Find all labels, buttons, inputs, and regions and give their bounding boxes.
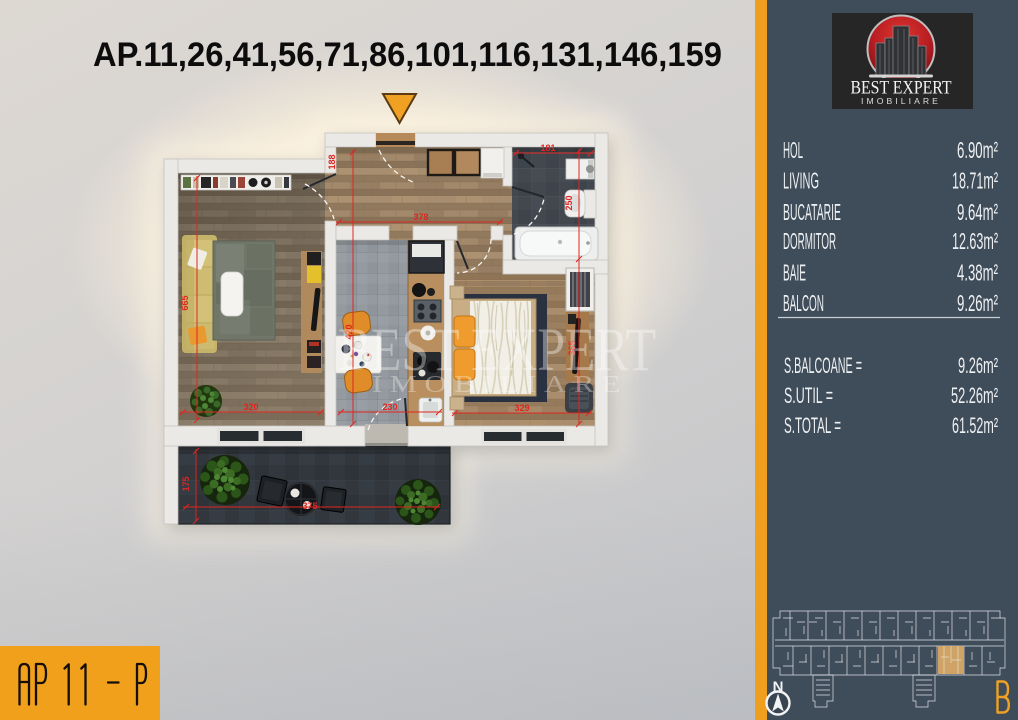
- svg-text:S.TOTAL =: S.TOTAL =: [784, 413, 841, 438]
- svg-text:BAIE: BAIE: [783, 260, 806, 286]
- svg-text:AP.11,26,41,56,71,86,101,116,1: AP.11,26,41,56,71,86,101,116,131,146,159: [93, 36, 722, 74]
- svg-text:4.38m²: 4.38m²: [957, 260, 998, 286]
- svg-text:S.UTIL =: S.UTIL =: [784, 383, 833, 408]
- svg-text:HOL: HOL: [783, 137, 803, 163]
- svg-text:52.26m²: 52.26m²: [951, 383, 998, 408]
- svg-text:18.71m²: 18.71m²: [952, 168, 998, 194]
- svg-text:IMOBILIARE: IMOBILIARE: [372, 372, 628, 398]
- svg-text:175: 175: [181, 476, 191, 491]
- svg-text:188: 188: [327, 154, 337, 169]
- svg-text:BALCON: BALCON: [783, 290, 824, 316]
- svg-text:6.90m²: 6.90m²: [957, 137, 998, 163]
- svg-text:320: 320: [243, 402, 258, 412]
- svg-text:9.64m²: 9.64m²: [957, 199, 998, 225]
- svg-text:IMOBILIARE: IMOBILIARE: [861, 96, 941, 106]
- svg-text:250: 250: [564, 195, 574, 210]
- svg-text:BUCATARIE: BUCATARIE: [783, 199, 841, 225]
- svg-text:12.63m²: 12.63m²: [952, 228, 998, 254]
- svg-text:S.BALCOANE =: S.BALCOANE =: [784, 353, 862, 378]
- svg-text:378: 378: [413, 212, 428, 222]
- svg-text:329: 329: [514, 403, 529, 413]
- svg-text:181: 181: [540, 143, 555, 153]
- svg-text:230: 230: [382, 402, 397, 412]
- svg-text:N: N: [773, 679, 784, 696]
- svg-text:61.52m²: 61.52m²: [952, 413, 998, 438]
- svg-text:665: 665: [180, 295, 190, 310]
- svg-text:9.26m²: 9.26m²: [957, 290, 998, 316]
- svg-text:DORMITOR: DORMITOR: [783, 228, 836, 254]
- svg-text:LIVING: LIVING: [783, 168, 819, 194]
- svg-text:9.26m²: 9.26m²: [958, 353, 998, 378]
- svg-text:375: 375: [302, 501, 317, 511]
